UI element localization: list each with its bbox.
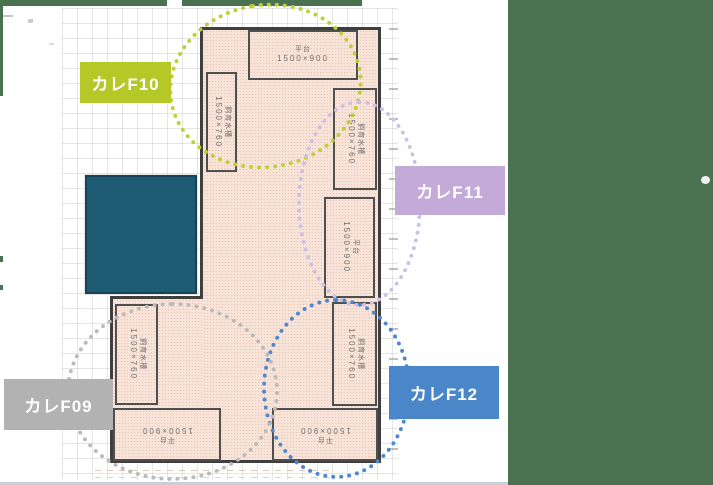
wall-middle (110, 296, 203, 299)
smudge-mark (3, 15, 13, 17)
f09-label: カレF09 (4, 379, 113, 430)
f11-label: カレF11 (395, 166, 505, 215)
outer-background-left-dash (0, 285, 3, 290)
f12-label: カレF12 (389, 366, 499, 419)
top-strip-white-notch (167, 0, 182, 6)
outer-background-left-dash (0, 256, 3, 262)
smudge-mark (28, 19, 33, 23)
outer-background-right (508, 0, 713, 485)
teal-tank-block (85, 175, 197, 294)
f10-label: カレF10 (80, 62, 171, 103)
smudge-mark (49, 43, 54, 45)
stray-cursor-dot (701, 176, 710, 184)
grid-dashed-line (95, 477, 335, 478)
